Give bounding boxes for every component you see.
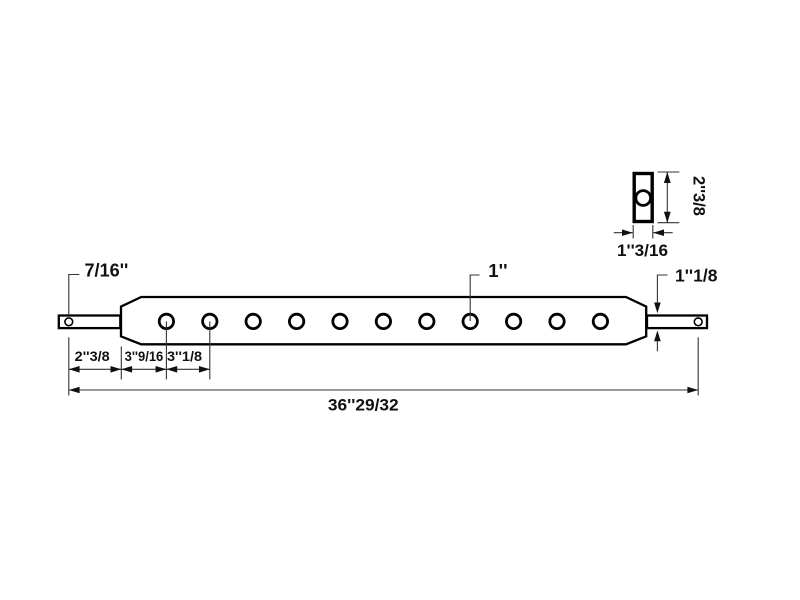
svg-text:36''29/32: 36''29/32 <box>328 396 399 415</box>
svg-text:1'': 1'' <box>488 261 507 281</box>
svg-text:2''3/8: 2''3/8 <box>75 348 110 364</box>
svg-text:2''3/8: 2''3/8 <box>690 176 708 216</box>
svg-text:1''1/8: 1''1/8 <box>675 266 718 286</box>
svg-text:1''3/16: 1''3/16 <box>617 241 668 260</box>
svg-text:7/16'': 7/16'' <box>85 261 129 281</box>
svg-text:3''9/16: 3''9/16 <box>125 348 164 364</box>
svg-text:3''1/8: 3''1/8 <box>167 348 202 364</box>
